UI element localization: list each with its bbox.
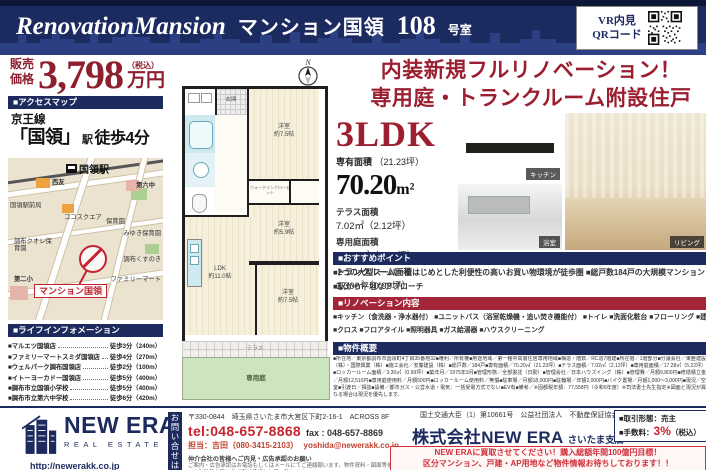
hallway	[215, 115, 249, 217]
property-map-label: マンション国領	[34, 284, 107, 298]
map-block-school	[10, 286, 28, 300]
life-item-value: 徒歩4分（270m）	[110, 352, 161, 361]
footer-divider	[0, 406, 706, 408]
vr-label: VR内見 QRコード	[592, 14, 642, 43]
photo-caption: 浴室	[539, 236, 560, 248]
life-info-header: ■ライフインフォメーション	[8, 324, 163, 337]
life-item-value: 徒歩5分（400m）	[110, 383, 161, 392]
qr-code	[648, 11, 682, 45]
map-station-name: 国領駅	[79, 161, 109, 176]
contact-block: 〒330-0844 埼玉県さいたま市大宮区下町2-16-1 ACROSS 8F …	[188, 412, 384, 470]
broker-notice-line1: ご案内・広告承認はお電話もしくはメールにてご連絡願います。物件資料・図面等をお送…	[188, 463, 384, 470]
map-label: 保育園	[106, 218, 125, 225]
property-map-marker	[79, 245, 107, 273]
price-label: 販売 価格	[10, 57, 34, 92]
life-item-name: ■ファミリーマートスミダ国領店	[8, 352, 100, 361]
overview-header: ■物件概要	[333, 342, 706, 355]
map-label: 調布クオレ保育園	[14, 238, 54, 252]
purchase-banner: NEW ERAに買取させてください！購入総額年間100億円目標！ 区分マンション…	[390, 446, 706, 470]
entrance-label: 玄関	[215, 97, 247, 104]
fee-line: ■手数料：3%（税込）	[619, 425, 705, 439]
dotted-leader	[58, 347, 108, 348]
map-block-coco	[62, 204, 74, 213]
life-item: ■イトーヨーカドー国領店徒歩5分（400m）	[8, 371, 161, 381]
area-label-line: 専有面積 （21.23坪）	[336, 155, 454, 168]
purchase-banner-line2: 区分マンション、戸建・AP用地など物件情報お待ちしております！！	[391, 459, 705, 470]
life-item: ■ウェルパーク調布国領店徒歩2分（100m）	[8, 361, 161, 371]
map-label: 西友	[52, 179, 65, 186]
broker-notice-title: 仲介会社の皆様へご内見・広告承認のお願い	[188, 454, 384, 463]
terrace-area-value: 7.02㎡（2.12坪）	[336, 218, 454, 232]
plan-wall	[249, 179, 319, 181]
dotted-leader	[83, 379, 108, 380]
area-tsubo: （21.23坪）	[375, 157, 425, 167]
catch-copy-line2: 専用庭・トランクルーム附設住戸	[356, 84, 706, 112]
renovation-text: ■キッチン（食洗器・浄水器付） ■ユニットバス（浴室乾燥機・追い焚き機能付） ■…	[333, 311, 706, 337]
renovation-line2: ■クロス ■フロアタイル ■照明器具 ■ガス給湯器 ■ハウスクリーニング	[333, 324, 706, 337]
map-block-seiyu	[36, 178, 50, 188]
terrace-area-label: テラス面積	[336, 206, 454, 218]
vr-qr-box: VR内見 QRコード	[576, 6, 698, 50]
bathroom-photo: 浴室	[458, 184, 562, 250]
office-address: 〒330-0844 埼玉県さいたま市大宮区下町2-16-1 ACROSS 8F	[188, 412, 384, 422]
plan-wall	[185, 215, 249, 217]
life-item-value: 徒歩5分（400m）	[110, 373, 161, 382]
plan-wall	[247, 89, 249, 217]
life-item: ■調布市立国領小学校徒歩5分（400m）	[8, 382, 161, 392]
map-station-label: 国領駅	[66, 161, 109, 176]
logo-text-wrap: NEW ERA REAL ESTATE	[64, 414, 176, 449]
plan-wall	[289, 181, 291, 205]
room-name: 洋室	[249, 221, 319, 229]
logo-subtitle: REAL ESTATE	[64, 440, 176, 449]
room-size: 約7.5帖	[249, 131, 319, 139]
life-item-name: ■調布市立国領小学校	[8, 383, 68, 392]
points-header: ■おすすめポイント	[333, 252, 706, 265]
room-size: 約7.5帖	[257, 297, 319, 305]
station-walk-line: 「国領」 駅 徒歩4分	[10, 123, 149, 149]
points-text: ■2つの大型スーパーをはじめとした利便性の高いお買い物環境が徒歩圏 ■総戸数18…	[333, 266, 706, 294]
renovation-header: ■リノベーション内容	[333, 297, 706, 310]
inquiry-vertical-label: お問い合せは	[168, 412, 182, 470]
deal-type-label: ■取引形態：	[619, 414, 661, 423]
photo-caption: リビング	[670, 236, 704, 248]
kitchen-counter	[187, 239, 202, 287]
page-title: RenovationMansion マンション国領 108 号室	[16, 11, 472, 41]
sink-icon	[193, 162, 209, 178]
life-item-name: ■調布市立第六中学校	[8, 393, 68, 402]
life-item: ■ファミリーマートスミダ国領店徒歩4分（270m）	[8, 350, 161, 360]
catch-copy-line1: 内装新規フルリノベーション！	[356, 56, 706, 84]
header: RenovationMansion マンション国領 108 号室 VR内見 QR…	[0, 0, 706, 55]
map-label: ココスクエア	[64, 214, 102, 221]
phone-row: tel:048-657-8868 fax : 048-657-8869	[188, 423, 384, 439]
price-block: 販売 価格 3,798 （税込） 万円	[10, 57, 165, 92]
room-name: 洋室	[249, 123, 319, 131]
area-value: 70.20	[336, 169, 396, 201]
plan-wall	[249, 261, 319, 265]
terrace-area: テラス	[182, 341, 328, 357]
washroom	[185, 153, 215, 187]
access-map-header: ■アクセスマップ	[8, 96, 163, 109]
license-number: 国土交通大臣（1）第10661号 公益社団法人 不動産保証協会	[420, 410, 618, 420]
walk-in-closet-label: ウォークインクローゼット	[249, 185, 291, 196]
life-item: ■マルエツ国領店徒歩3分（240m）	[8, 340, 161, 350]
points-line2: ■駅から平坦なアプローチ	[333, 280, 706, 294]
contact-person: 担当：吉田（080-3415-2103）	[188, 441, 298, 450]
photo-caption: キッチン	[526, 168, 560, 180]
toilet-icon	[192, 194, 207, 213]
title-english: RenovationMansion	[16, 13, 226, 41]
contact-person-row: 担当：吉田（080-3415-2103） yoshida@newerakk.co…	[188, 440, 384, 451]
garden-area-label: 専用庭面積	[336, 236, 454, 248]
map-label: みゆき保育園	[123, 230, 161, 237]
fax-number: fax : 048-657-8869	[306, 428, 383, 438]
tel-number: tel:048-657-8868	[188, 423, 301, 439]
bathtub-icon	[189, 121, 213, 149]
life-item-name: ■マルエツ国領店	[8, 341, 56, 350]
title-building-name: マンション国領	[238, 11, 385, 40]
area-label: 専有面積	[336, 157, 372, 167]
life-item: ■調布市立第六中学校徒歩6分（420m）	[8, 392, 161, 402]
life-item-name: ■イトーヨーカドー国領店	[8, 373, 81, 382]
building-logo-icon	[22, 414, 58, 456]
price-unit-wrap: （税込） 万円	[127, 60, 165, 92]
flyer: RenovationMansion マンション国領 108 号室 VR内見 QR…	[0, 0, 706, 470]
room-size: 約5.9帖	[249, 229, 319, 237]
life-item-name: ■ウェルパーク調布国領店	[8, 362, 81, 371]
dotted-leader	[102, 358, 108, 359]
bedroom-3-label: 洋室 約7.5帖	[257, 289, 319, 305]
map-label: 調布くすのき	[123, 256, 161, 263]
living-photo: リビング	[565, 113, 706, 250]
company-name: 株式会社NEW ERA	[412, 423, 564, 448]
map-label: ファミリーマート	[111, 276, 161, 283]
compass-n: N	[304, 58, 311, 67]
renovation-line1: ■キッチン（食洗器・浄水器付） ■ユニットバス（浴室乾燥機・追い焚き機能付） ■…	[333, 311, 706, 324]
deal-fee-box: ■取引形態：売主 ■手数料：3%（税込）	[614, 410, 706, 442]
plan-wall	[255, 265, 257, 335]
area-unit: m²	[396, 181, 414, 198]
price-amount: 3,798	[38, 58, 123, 92]
dotted-leader	[83, 368, 108, 369]
price-label-line1: 販売	[10, 57, 34, 72]
title-room-number: 108	[397, 11, 436, 41]
contact-email: yoshida@newerakk.co.jp	[304, 441, 399, 450]
company-url: http://newerakk.co.jp	[30, 461, 120, 470]
company-logo: NEW ERA REAL ESTATE	[22, 414, 176, 456]
bedroom-2-label: 洋室 約5.9帖	[249, 221, 319, 237]
compass-icon: N	[295, 57, 321, 87]
price-label-line2: 価格	[10, 72, 34, 87]
property-overview-text: ■所在地／東京都調布市国領町4丁目35番地32■権利／所有権■用途地域／第一種中…	[333, 356, 706, 406]
fee-note: （税込）	[671, 428, 701, 437]
station-icon	[66, 164, 77, 173]
points-line1: ■2つの大型スーパーをはじめとした利便性の高いお買い物環境が徒歩圏 ■総戸数18…	[333, 266, 706, 280]
vr-label-line1: VR内見	[592, 14, 642, 28]
bathroom	[185, 115, 215, 153]
layout-type: 3LDK	[336, 116, 454, 152]
life-info-list: ■マルエツ国領店徒歩3分（240m） ■ファミリーマートスミダ国領店徒歩4分（2…	[8, 340, 161, 402]
private-garden-area: 専用庭	[182, 357, 330, 400]
company-name-row: 株式会社NEW ERA さいたま支店	[412, 423, 624, 448]
logo-name: NEW ERA	[64, 414, 176, 437]
catch-copy: 内装新規フルリノベーション！ 専用庭・トランクルーム附設住戸	[356, 56, 706, 113]
toilet-room	[185, 187, 213, 217]
price-unit: 万円	[127, 71, 165, 90]
walk-time: 徒歩4分	[95, 124, 150, 148]
fee-label: ■手数料：	[619, 428, 654, 437]
closet	[291, 181, 319, 205]
deal-type-value: 売主	[661, 414, 676, 423]
exclusive-area: 70.20m²	[336, 169, 454, 202]
map-block-park	[145, 244, 159, 254]
map-label: 国領駅前局	[10, 202, 41, 209]
station-name: 「国領」	[10, 123, 80, 149]
dotted-leader	[70, 399, 107, 400]
life-item-value: 徒歩6分（420m）	[110, 393, 161, 402]
map-label: 第六中	[136, 182, 155, 189]
life-item-value: 徒歩3分（240m）	[110, 341, 161, 350]
purchase-banner-line1: NEW ERAに買取させてください！購入総額年間100億円目標！	[391, 448, 705, 459]
meter-box	[185, 89, 217, 115]
map-label: 第二小	[14, 276, 33, 283]
station-suffix: 駅	[82, 131, 93, 147]
room-name: 洋室	[257, 289, 319, 297]
title-room-suffix: 号室	[448, 21, 472, 38]
life-item-value: 徒歩2分（100m）	[110, 362, 161, 371]
vr-label-line2: QRコード	[592, 28, 642, 42]
fee-value: 3%	[654, 424, 671, 438]
access-map: 国領駅 西友 ココスクエア 国領駅前局 調布クオレ保育園 第六中 保育園 みゆき…	[8, 158, 163, 320]
floor-plan: 玄関 洋室 約7.5帖 ウォークインクローゼット 洋室 約5.9帖 洋室 約7.…	[182, 86, 328, 344]
dotted-leader	[70, 389, 107, 390]
kitchen-photo: キッチン	[458, 113, 562, 182]
plan-wall	[249, 203, 319, 205]
bedroom-1-label: 洋室 約7.5帖	[249, 123, 319, 139]
